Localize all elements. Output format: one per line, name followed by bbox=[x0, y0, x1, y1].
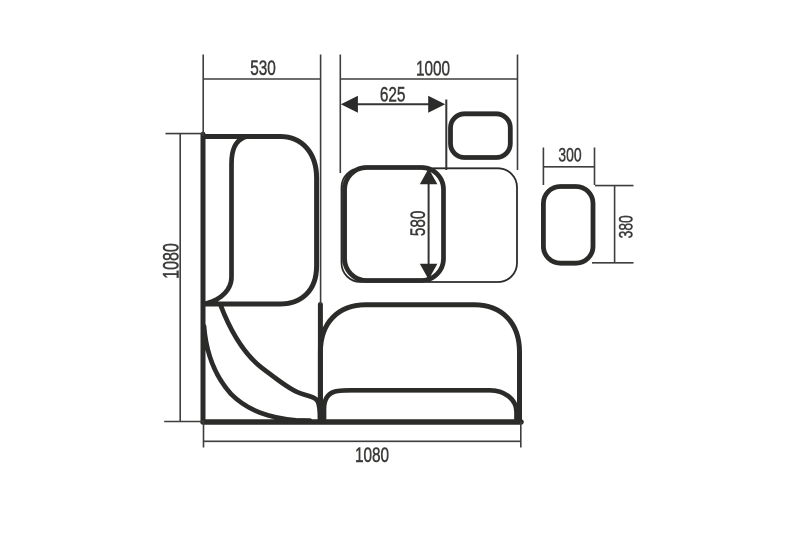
svg-text:1080: 1080 bbox=[160, 243, 184, 279]
svg-text:300: 300 bbox=[558, 144, 581, 166]
svg-text:530: 530 bbox=[250, 55, 276, 79]
svg-text:625: 625 bbox=[380, 82, 406, 106]
svg-text:580: 580 bbox=[406, 211, 430, 237]
svg-text:380: 380 bbox=[615, 215, 637, 238]
svg-text:1080: 1080 bbox=[355, 443, 389, 467]
svg-text:1000: 1000 bbox=[416, 56, 450, 80]
